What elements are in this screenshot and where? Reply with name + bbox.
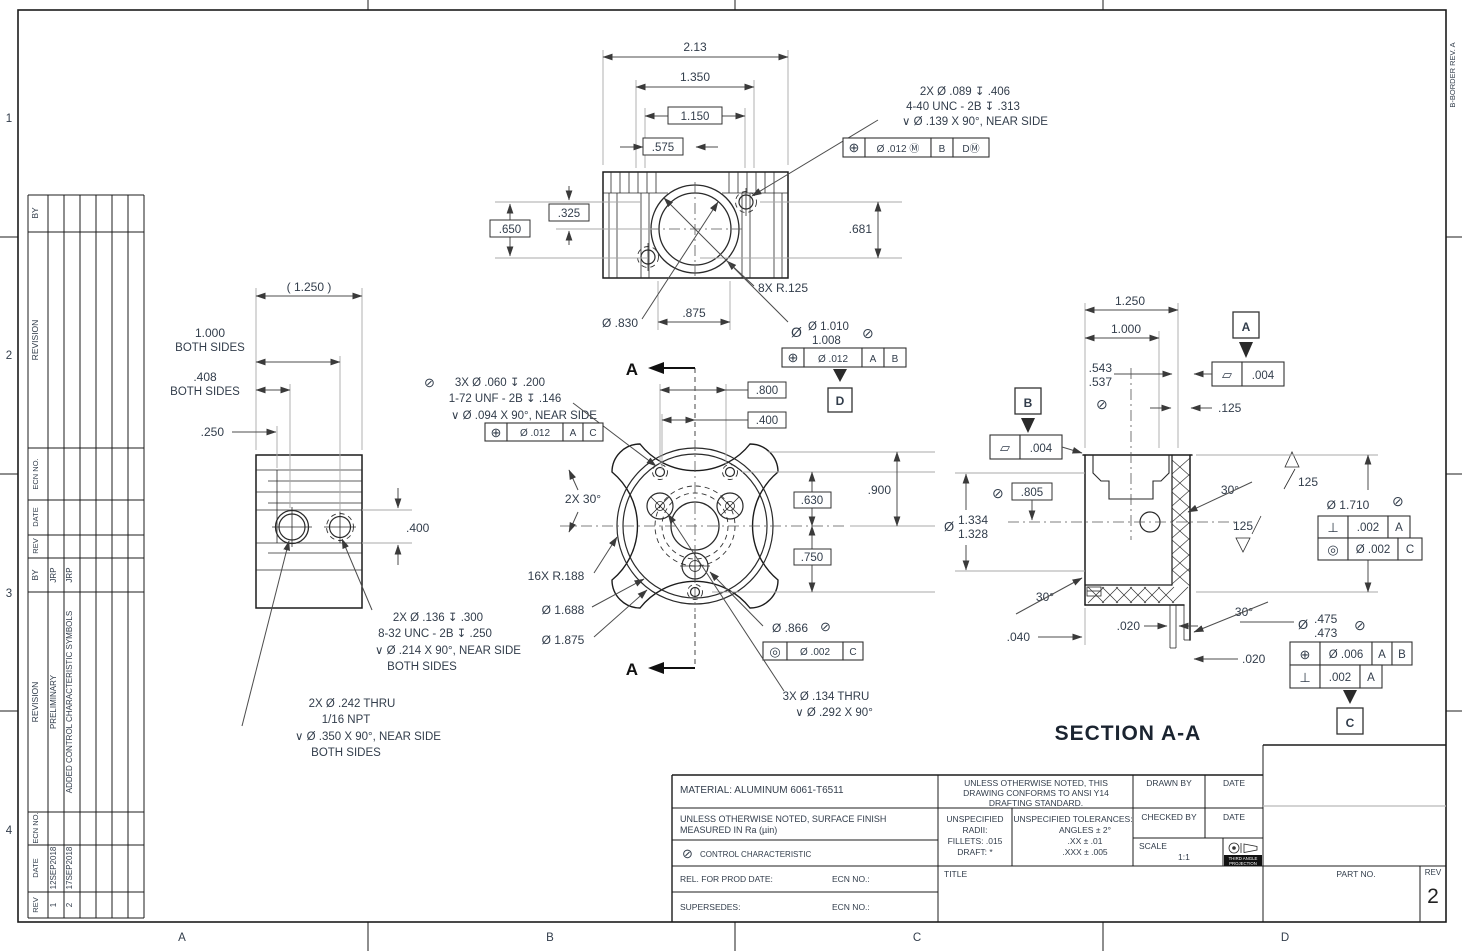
datum-b-flag: B ▱ .004 xyxy=(990,388,1082,459)
flatness-tol-b: .004 xyxy=(1030,443,1053,455)
dim-805: .805 xyxy=(1021,487,1043,499)
dim-400: .400 xyxy=(406,521,430,535)
dim-475: .475 xyxy=(1314,612,1338,626)
dim-020-inner: .020 xyxy=(1117,619,1141,633)
date-label-1: DATE xyxy=(1223,778,1245,788)
front-tap-note-line1: 3X Ø .060 ↧ .200 xyxy=(455,377,545,389)
conformance-note-3: DRAFTING STANDARD. xyxy=(989,798,1083,808)
control-characteristic-icon: ⊘ xyxy=(862,325,874,341)
finish-125: 125 xyxy=(1298,475,1318,489)
dia-symbol: Ø xyxy=(1298,617,1308,632)
conformance-note-2: DRAWING CONFORMS TO ANSI Y14 xyxy=(963,788,1109,798)
rev-header-ecn-2: ECN NO. xyxy=(31,812,40,843)
datum-leader-triangle xyxy=(833,369,847,382)
dim-1250-section: 1.250 xyxy=(1115,294,1145,308)
control-characteristic-icon: ⊘ xyxy=(992,485,1004,501)
third-angle-projection-icon: THIRD ANGLE PROJECTION xyxy=(1224,843,1262,866)
rel-for-prod-label: REL. FOR PROD DATE: xyxy=(680,874,773,884)
side-note2-line3: ∨ Ø .350 X 90°, NEAR SIDE xyxy=(295,731,441,743)
fcf-475-d3: A xyxy=(1367,672,1375,684)
dim-1334: 1.334 xyxy=(958,513,988,527)
control-characteristic-icon: ⊘ xyxy=(820,619,831,634)
concentricity-fcf-866: ◎ Ø .002 C xyxy=(763,642,863,660)
datum-a-label: A xyxy=(1242,320,1251,334)
rev2-desc: ADDED CONTROL CHARACTERISTIC SYMBOLS xyxy=(65,611,74,793)
surface-finish-note-2: MEASURED IN Ra (µin) xyxy=(680,825,777,835)
rev1-by: JRP xyxy=(49,567,58,582)
dim-650: .650 xyxy=(499,224,521,236)
side-note2-line1: 2X Ø .242 THRU xyxy=(309,698,396,710)
dim-ref-1250: ( 1.250 ) xyxy=(287,280,332,294)
control-characteristic-label: CONTROL CHARACTERISTIC xyxy=(700,850,811,859)
front-note2-line1: 3X Ø .134 THRU xyxy=(783,691,870,703)
side-note2-line2: 1/16 NPT xyxy=(322,714,371,726)
tap-fcf: ⊕ Ø .012 Ⓜ B DⓂ xyxy=(843,138,989,157)
control-characteristic-icon: ⊘ xyxy=(1354,617,1366,633)
dim-900: .900 xyxy=(868,483,892,497)
datum-d-flag: D xyxy=(836,394,845,408)
bore-fcf-d2: B xyxy=(892,354,899,365)
rev-header-by: BY xyxy=(30,207,40,219)
datum-b-label: B xyxy=(1024,396,1033,410)
dim-543: .543 xyxy=(1089,361,1113,375)
tolerance-note-2: ANGLES ± 2° xyxy=(1059,825,1111,835)
tap-fcf-d2: DⓂ xyxy=(962,143,979,155)
front-fcf-d1: A xyxy=(570,428,577,439)
scale-value: 1:1 xyxy=(1178,852,1190,862)
tap-fcf-tol: Ø .012 Ⓜ xyxy=(877,143,920,155)
fcf-1710-d1: A xyxy=(1395,522,1403,534)
tolerance-note-4: .XXX ± .005 xyxy=(1062,847,1108,857)
zone-row-2: 2 xyxy=(6,350,12,362)
rev1-desc: PRELIMINARY xyxy=(49,674,58,729)
fcf-866-datum: C xyxy=(849,647,856,658)
drawing-canvas: 1 2 3 4 A B C D B-BORDER REV. A BY REVIS… xyxy=(0,0,1471,951)
perpendicularity-symbol: ⊥ xyxy=(1327,520,1338,535)
dim-408-qualifier: BOTH SIDES xyxy=(170,386,240,398)
finish-125: 125 xyxy=(1233,519,1253,533)
bore-dia-upper: Ø 1.010 xyxy=(808,321,849,333)
front-note2-line2: ∨ Ø .292 X 90° xyxy=(795,707,873,719)
bore-dia-symbol: Ø xyxy=(944,519,954,534)
dim-250: .250 xyxy=(201,425,225,439)
rev-header-revision-2: REVISION xyxy=(30,682,40,723)
dim-575: .575 xyxy=(652,142,674,154)
rev2-date: 17SEP2018 xyxy=(65,846,74,889)
front-tap-note-line3: ∨ Ø .094 X 90°, NEAR SIDE xyxy=(451,410,597,422)
checked-by-label: CHECKED BY xyxy=(1141,812,1197,822)
bore-fcf-d1: A xyxy=(870,354,877,365)
rev1-date: 12SEP2018 xyxy=(49,846,58,889)
border-corner-note: B-BORDER REV. A xyxy=(1448,42,1457,107)
bore-dia-lower: 1.008 xyxy=(812,335,841,347)
datum-c-flag: C xyxy=(1346,716,1355,730)
rev-header-ecn: ECN NO. xyxy=(31,458,40,489)
dim-1710: Ø 1.710 xyxy=(1327,498,1370,512)
bore-fcf-tol: Ø .012 xyxy=(818,354,848,365)
radii-note-3: FILLETS: .015 xyxy=(948,836,1003,846)
title-label: TITLE xyxy=(944,869,967,879)
zone-col-d: D xyxy=(1281,932,1289,944)
datum-leader-triangle xyxy=(1343,690,1357,704)
rev-value: 2 xyxy=(1427,885,1439,908)
section-view: 1.250 1.000 .543 .537 ⊘ .125 A ▱ .004 B … xyxy=(944,294,1422,745)
dim-1000-section: 1.000 xyxy=(1111,322,1141,336)
fcf-475: ⊕ Ø .006 A B ⊥ .002 A xyxy=(1290,642,1412,688)
radii-note-4: DRAFT: * xyxy=(957,847,993,857)
front-fcf-d2: C xyxy=(589,428,596,439)
projection-label-2: PROJECTION xyxy=(1229,861,1257,866)
side-note2-line4: BOTH SIDES xyxy=(311,747,381,759)
dim-2-13: 2.13 xyxy=(683,40,707,54)
control-characteristic-icon: ⊘ xyxy=(1096,396,1108,412)
zone-col-c: C xyxy=(913,932,921,944)
side-note1-line4: BOTH SIDES xyxy=(387,661,457,673)
rev2-by: JRP xyxy=(65,567,74,582)
front-tap-note-line2: 1-72 UNF - 2B ↧ .146 xyxy=(449,393,562,405)
dim-040: .040 xyxy=(1007,630,1031,644)
dim-1688: Ø 1.688 xyxy=(542,603,585,617)
side-note1-line2: 8-32 UNC - 2B ↧ .250 xyxy=(378,628,492,640)
fcf-475-tol: Ø .006 xyxy=(1329,649,1364,661)
zone-row-1: 1 xyxy=(6,113,12,125)
fcf-475-d2: B xyxy=(1398,649,1406,661)
fcf-1710: ⊥ .002 A ◎ Ø .002 C xyxy=(1318,516,1422,560)
rev-header-rev: REV xyxy=(31,538,40,553)
dim-681: .681 xyxy=(849,222,873,236)
fcf-1710-tol1: .002 xyxy=(1357,522,1379,534)
dim-bore-830: Ø .830 xyxy=(602,316,638,330)
csk-hole-upper-right xyxy=(717,493,743,519)
tap-fcf-d1: B xyxy=(939,144,946,155)
front-view: A A ⊘ 3X Ø .060 ↧ .200 1-72 UNF - 2B ↧ .… xyxy=(424,360,935,719)
fcf-1710-d2: C xyxy=(1406,544,1414,556)
tap-note-line3: ∨ Ø .139 X 90°, NEAR SIDE xyxy=(902,116,1048,128)
crosshatch xyxy=(1088,458,1190,603)
dim-1-150: 1.150 xyxy=(681,111,710,123)
concentricity-symbol: ◎ xyxy=(1327,542,1338,557)
drawn-by-label: DRAWN BY xyxy=(1146,778,1192,788)
flatness-symbol: ▱ xyxy=(1222,367,1232,382)
rev1-rev: 1 xyxy=(49,902,58,907)
rev-header-by-2: BY xyxy=(30,569,40,581)
fcf-475-d1: A xyxy=(1378,649,1386,661)
dim-875: .875 xyxy=(682,306,706,320)
scallop-radius-note: 16X R.188 xyxy=(528,569,585,583)
zone-row-4: 4 xyxy=(6,825,13,837)
ecn-no-label-2: ECN NO.: xyxy=(832,902,870,912)
fcf-1710-tol2: Ø .002 xyxy=(1356,544,1391,556)
dim-537: .537 xyxy=(1089,375,1113,389)
position-symbol: ⊕ xyxy=(1300,647,1311,662)
dim-630: .630 xyxy=(801,495,823,507)
position-symbol: ⊕ xyxy=(788,350,799,365)
zone-col-a: A xyxy=(178,932,186,944)
rev-header-date-2: DATE xyxy=(31,858,40,877)
surface-finish-note-1: UNLESS OTHERWISE NOTED, SURFACE FINISH xyxy=(680,814,886,824)
dim-1000: 1.000 xyxy=(195,326,225,340)
rev-label: REV xyxy=(1425,868,1442,877)
datum-a-flag: A ▱ .004 xyxy=(1194,312,1284,386)
surface-finish-mark-right: 125 xyxy=(1284,452,1318,489)
material-note: MATERIAL: ALUMINUM 6061-T6511 xyxy=(680,785,844,796)
position-symbol: ⊕ xyxy=(491,425,502,440)
control-characteristic-icon: ⊘ xyxy=(424,375,435,390)
rev-header-date: DATE xyxy=(31,507,40,526)
dim-1328: 1.328 xyxy=(958,527,988,541)
zone-row-3: 3 xyxy=(6,588,12,600)
dim-020-outer: .020 xyxy=(1242,652,1266,666)
revision-table: BY REVISION ECN NO. DATE REV BY REVISION… xyxy=(28,195,144,918)
flatness-symbol: ▱ xyxy=(1000,440,1010,455)
side-view: ( 1.250 ) 1.000 BOTH SIDES .408 BOTH SID… xyxy=(170,280,521,759)
section-label-a-bottom: A xyxy=(626,660,638,679)
date-label-2: DATE xyxy=(1223,812,1245,822)
section-label-a-top: A xyxy=(626,360,638,379)
radii-note-2: RADII: xyxy=(962,825,987,835)
perpendicularity-symbol: ⊥ xyxy=(1299,670,1310,685)
top-view: 2.13 1.350 1.150 .575 .650 .325 .681 .87… xyxy=(490,40,1048,412)
dim-750: .750 xyxy=(801,552,823,564)
fcf-475-tol2: .002 xyxy=(1329,672,1351,684)
surface-finish-mark-bore: 125 xyxy=(1233,516,1261,552)
supersedes-label: SUPERSEDES: xyxy=(680,902,740,912)
tap-note-line2: 4-40 UNC - 2B ↧ .313 xyxy=(906,101,1020,113)
control-characteristic-icon: ⊘ xyxy=(1392,493,1404,509)
dim-400-front: .400 xyxy=(756,415,778,427)
dim-408: .408 xyxy=(193,370,217,384)
dim-125: .125 xyxy=(1218,401,1242,415)
zone-col-b: B xyxy=(546,932,554,944)
tolerance-note-3: .XX ± .01 xyxy=(1068,836,1103,846)
side-note1-line3: ∨ Ø .214 X 90°, NEAR SIDE xyxy=(375,645,521,657)
position-symbol: ⊕ xyxy=(849,140,860,155)
rev2-rev: 2 xyxy=(65,902,74,907)
ecn-no-label-1: ECN NO.: xyxy=(832,874,870,884)
dim-325: .325 xyxy=(558,208,580,220)
side-note1-line1: 2X Ø .136 ↧ .300 xyxy=(393,612,483,624)
concentricity-symbol: ◎ xyxy=(769,644,780,659)
control-characteristic-icon: ⊘ xyxy=(682,846,693,861)
front-tap-fcf: ⊕ Ø .012 A C xyxy=(485,423,603,441)
section-title: SECTION A-A xyxy=(1055,722,1202,745)
lobe-radius-note: 8X R.125 xyxy=(758,281,808,295)
dim-473: .473 xyxy=(1314,626,1338,640)
bore-fcf: ⊕ Ø .012 A B xyxy=(782,348,906,367)
dim-2x30: 2X 30° xyxy=(565,492,601,506)
part-no-label: PART NO. xyxy=(1336,869,1375,879)
dim-866: Ø .866 xyxy=(772,621,808,635)
front-fcf-tol: Ø .012 xyxy=(520,428,550,439)
conformance-note-1: UNLESS OTHERWISE NOTED, THIS xyxy=(964,778,1108,788)
rev-header-rev-2: REV xyxy=(31,897,40,912)
tap-note-line1: 2X Ø .089 ↧ .406 xyxy=(920,86,1010,98)
fcf-866-tol: Ø .002 xyxy=(800,647,830,658)
dim-1875: Ø 1.875 xyxy=(542,633,585,647)
drawing-sheet: 1 2 3 4 A B C D B-BORDER REV. A BY REVIS… xyxy=(0,0,1471,951)
scale-label: SCALE xyxy=(1139,841,1167,851)
rev-header-revision: REVISION xyxy=(30,320,40,361)
tolerance-note-1: UNSPECIFIED TOLERANCES: xyxy=(1013,814,1132,824)
dim-1-350: 1.350 xyxy=(680,70,710,84)
bore-dia-symbol: Ø xyxy=(791,324,802,340)
radii-note-1: UNSPECIFIED xyxy=(946,814,1003,824)
dim-1000-qualifier: BOTH SIDES xyxy=(175,342,245,354)
flatness-tol-a: .004 xyxy=(1252,370,1275,382)
title-block: MATERIAL: ALUMINUM 6061-T6511 UNLESS OTH… xyxy=(672,745,1446,922)
dim-800: .800 xyxy=(756,385,778,397)
